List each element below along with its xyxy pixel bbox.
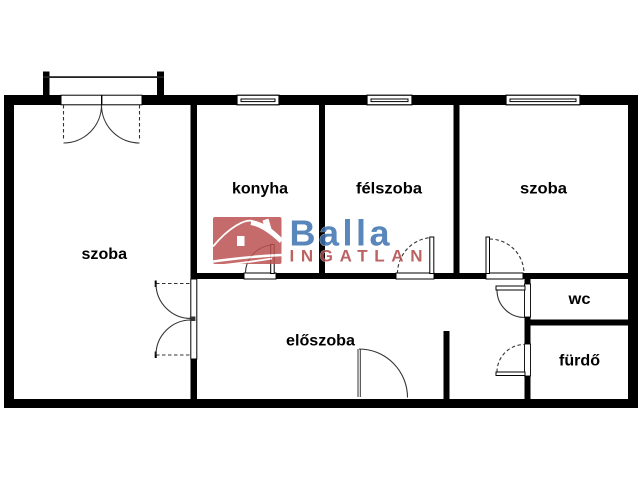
svg-text:wc: wc <box>567 291 590 308</box>
svg-text:szoba: szoba <box>82 246 128 263</box>
svg-text:szoba: szoba <box>520 180 567 197</box>
svg-text:előszoba: előszoba <box>286 333 355 350</box>
svg-text:fürdő: fürdő <box>559 353 600 370</box>
svg-text:konyha: konyha <box>232 181 288 198</box>
svg-text:félszoba: félszoba <box>356 181 422 198</box>
